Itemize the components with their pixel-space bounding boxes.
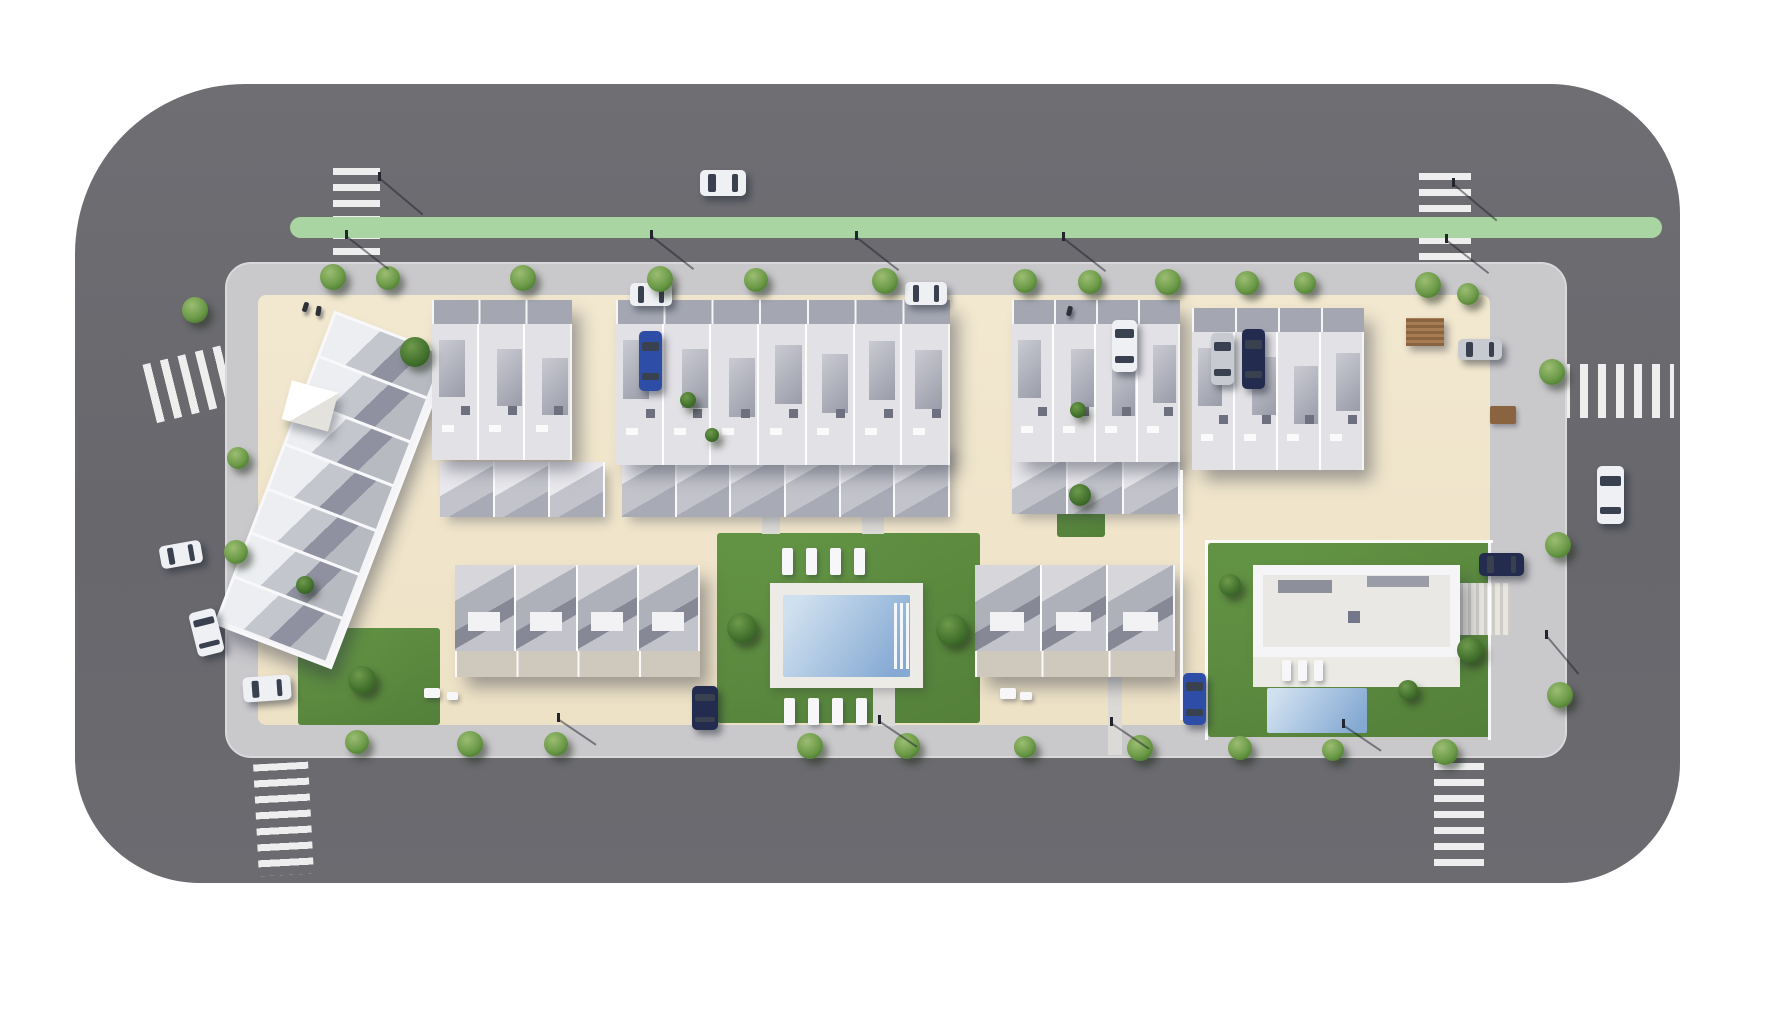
apartment-unit-roof bbox=[711, 324, 759, 465]
parapet bbox=[652, 612, 684, 631]
tree bbox=[1457, 283, 1479, 305]
car-rear-window bbox=[1489, 342, 1494, 357]
car-rear-window bbox=[276, 679, 283, 697]
townhouse-unit bbox=[639, 565, 698, 651]
car-windshield bbox=[1466, 342, 1473, 357]
car-rear-window bbox=[695, 717, 715, 722]
townhouse-unit bbox=[975, 565, 1042, 651]
villa-solar-panel bbox=[1367, 576, 1429, 587]
roof-unit-ac bbox=[1348, 415, 1357, 424]
street-front-band bbox=[1012, 300, 1180, 324]
apartment-unit-roof bbox=[855, 324, 903, 465]
roof-furniture bbox=[722, 428, 734, 435]
roof-unit-ac bbox=[1122, 407, 1131, 416]
tree bbox=[1547, 682, 1573, 708]
pergola bbox=[1406, 318, 1444, 346]
car-rear-window bbox=[188, 544, 196, 561]
scene-root bbox=[0, 0, 1780, 1024]
pool-steps bbox=[894, 603, 910, 669]
tree bbox=[1432, 739, 1458, 765]
car-windshield bbox=[638, 286, 645, 302]
sun-lounger bbox=[856, 698, 867, 725]
car-windshield bbox=[251, 680, 260, 698]
car-rear-window bbox=[1511, 556, 1516, 572]
tree bbox=[1219, 574, 1241, 596]
tree bbox=[1235, 271, 1259, 295]
tree bbox=[296, 576, 314, 594]
villa-skylight bbox=[1278, 580, 1332, 593]
swimming-pool bbox=[783, 595, 910, 677]
sun-lounger bbox=[424, 688, 440, 698]
car bbox=[1242, 329, 1265, 389]
zebra-crosswalk bbox=[253, 762, 314, 877]
roof-terrace bbox=[915, 350, 941, 409]
parapet bbox=[1123, 612, 1158, 631]
roof-furniture bbox=[1330, 434, 1342, 441]
street-front-band bbox=[1192, 308, 1364, 332]
car-windshield bbox=[708, 174, 715, 192]
roof-furniture bbox=[1287, 434, 1299, 441]
tree bbox=[224, 540, 248, 564]
roof-unit-ac bbox=[1305, 415, 1314, 424]
car-windshield bbox=[695, 694, 715, 701]
sun-lounger bbox=[854, 548, 865, 575]
tree bbox=[348, 666, 376, 694]
tree bbox=[680, 392, 696, 408]
fence-line bbox=[1205, 540, 1493, 543]
front-patio-band bbox=[455, 651, 700, 677]
car-rear-window bbox=[934, 285, 939, 301]
townhouse-unit bbox=[1108, 565, 1173, 651]
tree bbox=[1228, 736, 1252, 760]
car-rear-window bbox=[1186, 709, 1203, 715]
apartment-unit-roof bbox=[432, 324, 479, 460]
roof-furniture bbox=[1244, 434, 1256, 441]
street-front-band bbox=[432, 300, 572, 324]
tree bbox=[936, 614, 968, 646]
car-rear-window bbox=[642, 373, 659, 380]
tree bbox=[1013, 269, 1037, 293]
roof-furniture bbox=[770, 428, 782, 435]
apartment-unit-roof bbox=[1138, 324, 1178, 462]
green-median bbox=[290, 217, 1662, 238]
townhouse-unit bbox=[516, 565, 577, 651]
tree bbox=[744, 268, 768, 292]
roof-unit-ac bbox=[1219, 415, 1228, 424]
car-windshield bbox=[913, 285, 920, 301]
walkway bbox=[873, 688, 895, 726]
car-rear-window bbox=[1115, 356, 1134, 362]
car bbox=[242, 674, 292, 702]
roof-unit-ac bbox=[1164, 407, 1173, 416]
roof-unit-ac bbox=[554, 406, 563, 415]
sun-lounger bbox=[784, 698, 795, 725]
roof-terrace bbox=[1153, 345, 1176, 403]
roof-unit-ac bbox=[741, 409, 750, 418]
car-rear-window bbox=[732, 174, 738, 192]
tree bbox=[1155, 269, 1181, 295]
tree bbox=[1294, 272, 1316, 294]
apartment-unit-roof bbox=[525, 324, 570, 460]
roof-furniture bbox=[1201, 434, 1213, 441]
apartment-building bbox=[432, 300, 572, 460]
terrace-unit bbox=[550, 462, 605, 517]
car-windshield bbox=[1115, 329, 1134, 337]
roof-furniture bbox=[489, 425, 501, 432]
tree bbox=[544, 732, 568, 756]
car-windshield bbox=[166, 548, 175, 565]
tree bbox=[1078, 270, 1102, 294]
tree bbox=[797, 733, 823, 759]
car-windshield bbox=[193, 616, 215, 628]
tree bbox=[1415, 272, 1441, 298]
townhouse-unit bbox=[578, 565, 639, 651]
apartment-building bbox=[1012, 300, 1180, 462]
roof-unit-ac bbox=[1038, 407, 1047, 416]
apartment-unit-roof bbox=[479, 324, 526, 460]
apartment-unit-roof bbox=[1012, 324, 1054, 462]
sun-lounger bbox=[832, 698, 843, 725]
car-windshield bbox=[1214, 342, 1231, 350]
tree bbox=[1069, 484, 1091, 506]
roof-furniture bbox=[442, 425, 454, 432]
roof-furniture bbox=[1105, 426, 1117, 433]
tree bbox=[1070, 402, 1086, 418]
tree bbox=[872, 268, 898, 294]
sun-lounger bbox=[1000, 688, 1016, 699]
walkway bbox=[1108, 677, 1122, 755]
outdoor-table-set bbox=[1490, 406, 1516, 424]
car bbox=[639, 331, 662, 391]
car bbox=[1183, 673, 1206, 725]
townhouse-unit bbox=[455, 565, 516, 651]
roof-terrace bbox=[497, 349, 523, 406]
roof-furniture bbox=[865, 428, 877, 435]
roof-furniture bbox=[913, 428, 925, 435]
roof-unit-ac bbox=[1262, 415, 1271, 424]
apartment-unit-roof bbox=[1278, 332, 1321, 470]
car bbox=[692, 686, 718, 730]
townhouse-row bbox=[975, 565, 1175, 677]
car-rear-window bbox=[1245, 371, 1262, 378]
villa-roof-hatch bbox=[1348, 611, 1360, 623]
sun-lounger bbox=[808, 698, 819, 725]
tree bbox=[1539, 359, 1565, 385]
tree bbox=[705, 428, 719, 442]
car-windshield bbox=[1487, 556, 1494, 572]
roof-terrace bbox=[822, 354, 848, 413]
zebra-crosswalk bbox=[1434, 763, 1484, 871]
sun-lounger bbox=[1020, 692, 1032, 700]
roof-terrace bbox=[869, 341, 895, 400]
car bbox=[700, 170, 746, 196]
roof-furniture bbox=[1147, 426, 1159, 433]
car-rear-window bbox=[199, 639, 220, 649]
roof-terrace bbox=[1336, 353, 1360, 411]
car bbox=[905, 282, 947, 305]
sun-lounger bbox=[830, 548, 841, 575]
tree bbox=[1457, 637, 1483, 663]
car-windshield bbox=[1600, 476, 1621, 485]
roof-unit-ac bbox=[508, 406, 517, 415]
sun-lounger bbox=[447, 692, 458, 700]
car bbox=[1479, 553, 1524, 576]
roof-furniture bbox=[1021, 426, 1033, 433]
car bbox=[1211, 333, 1234, 385]
terrace-unit bbox=[495, 462, 550, 517]
sun-lounger bbox=[1282, 660, 1291, 681]
parapet bbox=[1056, 612, 1091, 631]
apartment-unit-roof bbox=[902, 324, 948, 465]
roof-terrace bbox=[1071, 349, 1094, 407]
tree bbox=[647, 266, 673, 292]
front-patio-band bbox=[975, 651, 1175, 677]
terrace-row bbox=[440, 462, 605, 517]
roof-unit-ac bbox=[646, 409, 655, 418]
roof-unit-ac bbox=[932, 409, 941, 418]
roof-unit-ac bbox=[836, 409, 845, 418]
site-plan-render bbox=[0, 0, 1780, 1024]
roof-furniture bbox=[674, 428, 686, 435]
sun-lounger bbox=[782, 548, 793, 575]
tree bbox=[182, 297, 208, 323]
tree bbox=[1014, 736, 1036, 758]
apartment-unit-roof bbox=[759, 324, 807, 465]
zebra-crosswalk bbox=[1562, 364, 1674, 418]
car-rear-window bbox=[1600, 507, 1621, 514]
tree bbox=[227, 447, 249, 469]
villa bbox=[1253, 565, 1460, 657]
tree bbox=[1545, 532, 1571, 558]
roof-unit-ac bbox=[789, 409, 798, 418]
tree bbox=[510, 265, 536, 291]
car-rear-window bbox=[1214, 369, 1231, 375]
parapet bbox=[530, 612, 562, 631]
tree bbox=[400, 337, 430, 367]
apartment-unit-roof bbox=[807, 324, 855, 465]
parapet bbox=[468, 612, 500, 631]
terrace-unit bbox=[440, 462, 495, 517]
apartment-building bbox=[616, 300, 950, 465]
tree bbox=[1322, 739, 1344, 761]
roof-terrace bbox=[775, 345, 801, 404]
apartment-unit-roof bbox=[1054, 324, 1096, 462]
roof-furniture bbox=[536, 425, 548, 432]
parapet bbox=[591, 612, 623, 631]
tree bbox=[320, 264, 346, 290]
tree bbox=[1398, 680, 1418, 700]
roof-furniture bbox=[1063, 426, 1075, 433]
roof-furniture bbox=[626, 428, 638, 435]
roof-unit-ac bbox=[884, 409, 893, 418]
car-windshield bbox=[1186, 682, 1203, 690]
stair-steps bbox=[1455, 583, 1510, 635]
tree bbox=[727, 613, 757, 643]
townhouse-unit bbox=[1042, 565, 1109, 651]
car bbox=[1112, 320, 1137, 372]
car-windshield bbox=[1245, 340, 1262, 350]
sun-lounger bbox=[1298, 660, 1307, 681]
roof-furniture bbox=[817, 428, 829, 435]
parapet bbox=[990, 612, 1025, 631]
swimming-pool bbox=[1267, 688, 1367, 733]
roof-terrace bbox=[1018, 340, 1041, 398]
sun-lounger bbox=[1314, 660, 1323, 681]
sun-lounger bbox=[806, 548, 817, 575]
car bbox=[1597, 466, 1624, 524]
tree bbox=[457, 731, 483, 757]
roof-terrace bbox=[439, 340, 465, 397]
car bbox=[1458, 339, 1502, 360]
car-windshield bbox=[642, 342, 659, 352]
townhouse-row bbox=[455, 565, 700, 677]
roof-unit-ac bbox=[461, 406, 470, 415]
apartment-unit-roof bbox=[1321, 332, 1362, 470]
tree bbox=[345, 730, 369, 754]
roof-unit-ac bbox=[693, 409, 702, 418]
